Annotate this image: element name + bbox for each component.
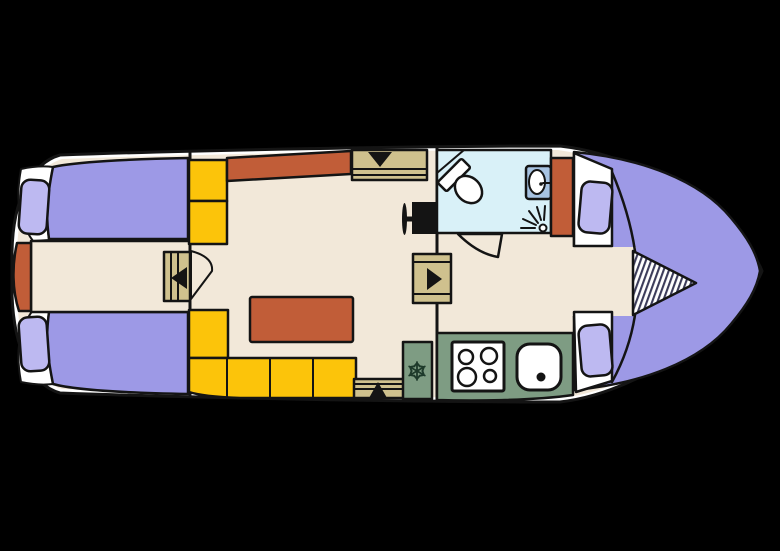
galley-sink — [517, 344, 561, 390]
shower-nozzle — [540, 225, 547, 232]
saloon-table — [250, 297, 353, 342]
aft-pillow-bottom — [18, 316, 50, 372]
galley-sink-basin — [517, 344, 561, 390]
bow-pillow-top — [578, 181, 613, 235]
storage-cabinet-3 — [189, 310, 228, 358]
galley-sink-drain — [537, 373, 546, 382]
tv-body — [412, 202, 437, 234]
companionway-steps-top — [352, 150, 427, 180]
companionway-steps-bottom — [354, 379, 405, 398]
storage-cabinet-2 — [189, 201, 227, 244]
floor-plan-canvas — [0, 0, 780, 551]
fridge — [403, 342, 432, 399]
wardrobe — [551, 158, 573, 236]
stove — [452, 342, 504, 391]
engine-hatch — [13, 243, 31, 311]
storage-cabinet-row — [189, 358, 356, 398]
washbasin-drain — [539, 182, 543, 186]
washbasin — [526, 166, 551, 199]
storage-cabinet-1 — [189, 160, 227, 201]
washbasin-bowl — [529, 170, 545, 194]
bow-floor — [570, 247, 636, 316]
cabin-door-fwd — [413, 254, 451, 303]
boat-floor-plan — [0, 0, 780, 551]
aft-berth-bottom — [47, 312, 188, 394]
aft-pillow-top — [18, 179, 50, 235]
aft-berth-top — [47, 158, 188, 239]
bow-pillow-bottom — [578, 324, 613, 378]
